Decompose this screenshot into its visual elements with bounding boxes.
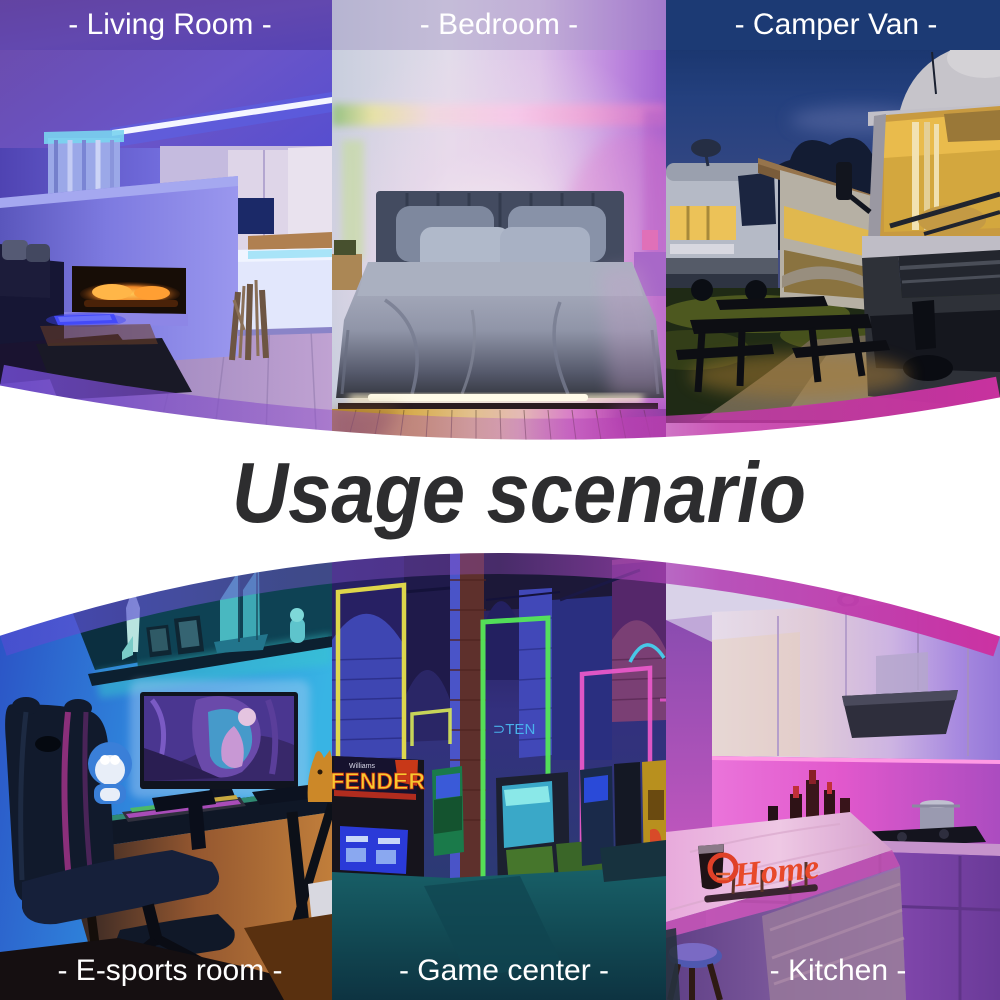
svg-text:- Bedroom -: - Bedroom - (420, 8, 578, 41)
svg-text:⊃TEN: ⊃TEN (493, 721, 536, 738)
svg-text:- E-sports room -: - E-sports room - (57, 954, 282, 987)
svg-text:- Living Room -: - Living Room - (68, 8, 271, 41)
svg-text:Usage scenario: Usage scenario (232, 446, 806, 541)
svg-text:- Kitchen -: - Kitchen - (770, 954, 907, 987)
svg-text:- Game center -: - Game center - (399, 954, 609, 987)
svg-text:- Camper Van -: - Camper Van - (735, 8, 938, 41)
